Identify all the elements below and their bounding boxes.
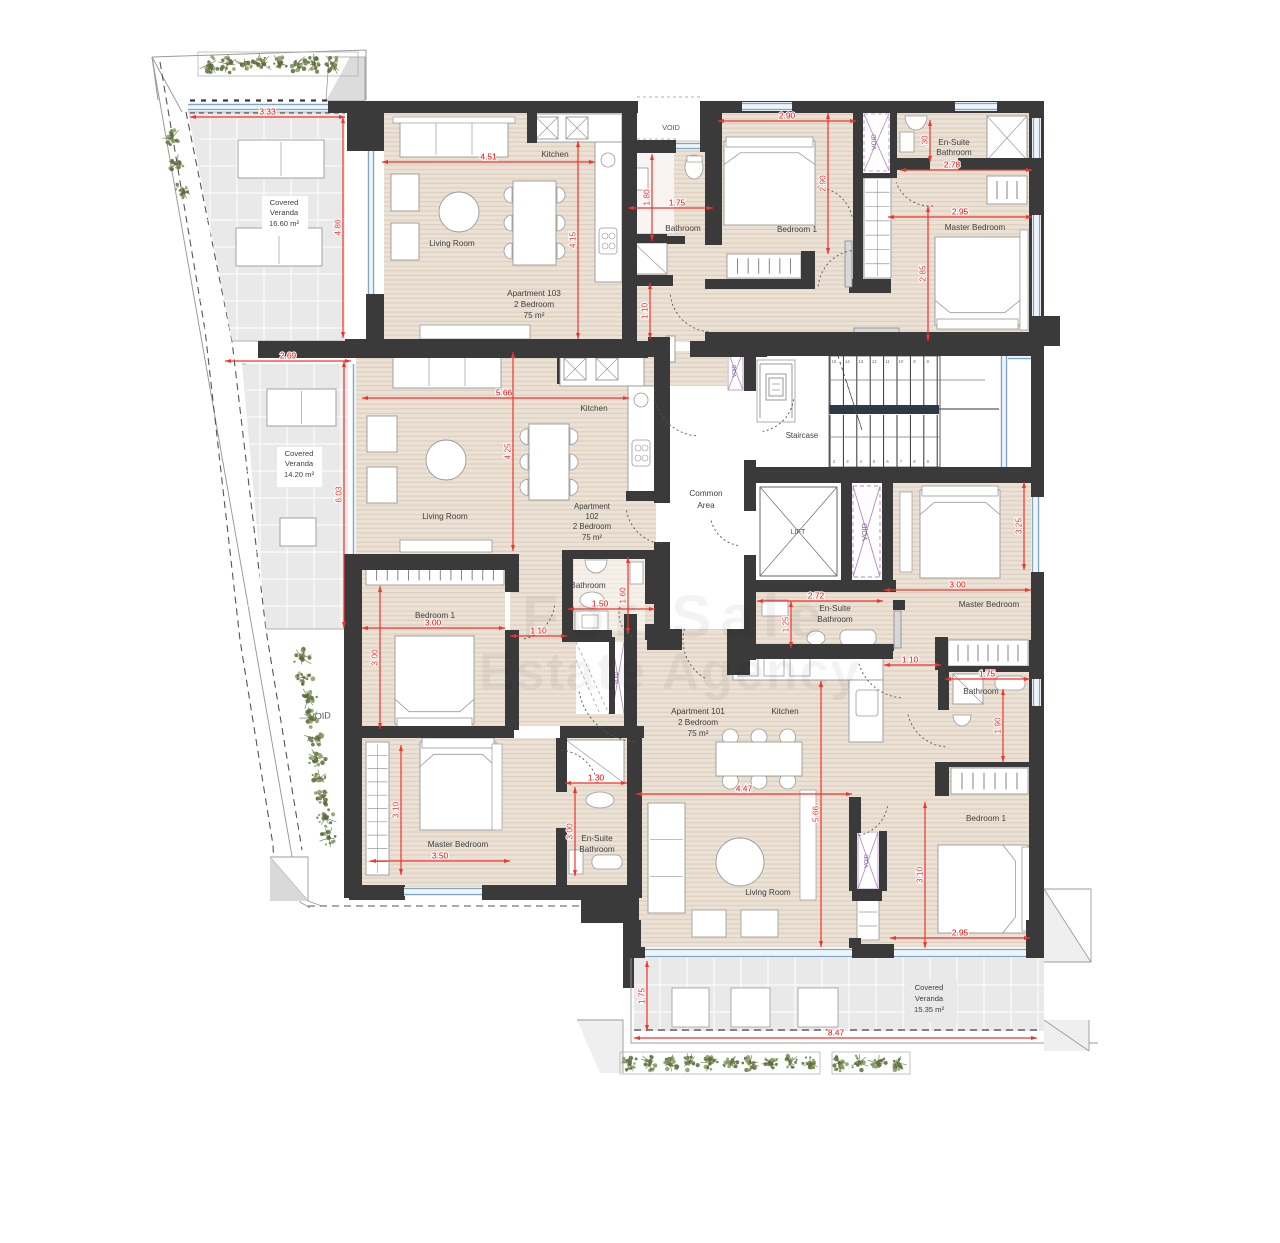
svg-text:2.69: 2.69: [280, 351, 297, 361]
svg-text:2 Bedroom: 2 Bedroom: [678, 718, 718, 727]
svg-text:VOID: VOID: [662, 123, 680, 132]
svg-text:VOID: VOID: [860, 523, 869, 541]
svg-text:1.10: 1.10: [902, 655, 919, 665]
svg-text:Living Room: Living Room: [422, 512, 468, 521]
svg-text:3.00: 3.00: [949, 580, 966, 590]
svg-text:Kitchen: Kitchen: [541, 150, 569, 159]
svg-text:Master Bedroom: Master Bedroom: [428, 840, 489, 849]
svg-text:2.95: 2.95: [952, 207, 969, 217]
svg-text:1.30: 1.30: [588, 773, 605, 783]
svg-text:4.25: 4.25: [503, 443, 513, 460]
svg-text:Bedroom 1: Bedroom 1: [415, 611, 455, 620]
svg-text:3.10: 3.10: [391, 802, 401, 819]
svg-text:3.33: 3.33: [259, 107, 276, 117]
svg-text:1.80: 1.80: [642, 189, 652, 206]
svg-text:15: 15: [832, 359, 837, 364]
svg-text:Veranda: Veranda: [270, 208, 299, 217]
svg-text:VOID: VOID: [732, 365, 738, 378]
svg-text:Bathroom: Bathroom: [936, 148, 972, 157]
svg-text:14.20 m²: 14.20 m²: [284, 470, 314, 479]
svg-text:2 Bedroom: 2 Bedroom: [514, 300, 554, 309]
svg-text:2.90: 2.90: [779, 111, 796, 121]
svg-text:2 Bedroom: 2 Bedroom: [573, 522, 611, 531]
svg-text:11: 11: [885, 359, 890, 364]
svg-text:Kitchen: Kitchen: [771, 707, 799, 716]
svg-text:3.50: 3.50: [432, 851, 449, 861]
svg-text:2.85: 2.85: [918, 265, 928, 282]
svg-text:Bathroom: Bathroom: [963, 687, 999, 696]
svg-text:Veranda: Veranda: [915, 994, 944, 1003]
svg-text:4.47: 4.47: [736, 784, 753, 794]
svg-text:4.15: 4.15: [568, 232, 578, 249]
svg-text:102: 102: [585, 512, 598, 521]
svg-text:Apartment: Apartment: [574, 502, 611, 511]
svg-text:2.78: 2.78: [944, 160, 961, 170]
svg-text:Area: Area: [697, 501, 715, 510]
svg-text:Master Bedroom: Master Bedroom: [959, 600, 1020, 609]
svg-text:8.47: 8.47: [828, 1028, 845, 1038]
svg-text:1.10: 1.10: [640, 303, 650, 320]
svg-text:En-Suite: En-Suite: [938, 138, 970, 147]
svg-text:3.00: 3.00: [565, 823, 575, 840]
svg-text:75 m²: 75 m²: [524, 311, 545, 320]
svg-text:75 m²: 75 m²: [688, 729, 709, 738]
svg-text:15.35 m²: 15.35 m²: [914, 1005, 944, 1014]
svg-text:Covered: Covered: [285, 449, 314, 458]
svg-text:Kitchen: Kitchen: [580, 404, 608, 413]
svg-text:Covered: Covered: [915, 983, 944, 992]
svg-text:Estate Agency: Estate Agency: [479, 643, 861, 701]
svg-text:1.75: 1.75: [669, 198, 686, 208]
svg-text:Bedroom 1: Bedroom 1: [966, 814, 1006, 823]
svg-text:Covered: Covered: [270, 198, 299, 207]
svg-text:.30: .30: [921, 135, 930, 147]
svg-text:1.75: 1.75: [979, 669, 996, 679]
svg-text:Master Bedroom: Master Bedroom: [945, 223, 1006, 232]
svg-text:10: 10: [899, 359, 904, 364]
svg-text:16.60 m²: 16.60 m²: [269, 219, 299, 228]
svg-text:13: 13: [858, 359, 863, 364]
svg-text:1.75: 1.75: [637, 988, 647, 1005]
svg-text:Apartment 101: Apartment 101: [671, 707, 725, 716]
svg-text:VOID: VOID: [871, 134, 878, 150]
svg-text:For Sale: For Sale: [522, 583, 831, 650]
svg-text:3.25: 3.25: [1014, 518, 1024, 535]
svg-text:2.90: 2.90: [818, 175, 828, 192]
svg-text:VOID: VOID: [864, 854, 870, 868]
svg-text:Veranda: Veranda: [285, 459, 314, 468]
svg-text:Bathroom: Bathroom: [665, 224, 701, 233]
svg-text:Bathroom: Bathroom: [579, 845, 615, 854]
svg-text:3.10: 3.10: [915, 867, 925, 884]
svg-text:1.90: 1.90: [993, 717, 1003, 734]
svg-text:75 m²: 75 m²: [582, 533, 602, 542]
svg-text:2.95: 2.95: [952, 928, 969, 938]
svg-text:Staircase: Staircase: [786, 431, 819, 440]
svg-text:En-Suite: En-Suite: [581, 834, 613, 843]
svg-text:Living Room: Living Room: [429, 239, 475, 248]
svg-text:14: 14: [845, 359, 850, 364]
svg-text:Bedroom 1: Bedroom 1: [777, 225, 817, 234]
svg-text:12: 12: [872, 359, 877, 364]
svg-text:6.03: 6.03: [334, 486, 344, 503]
svg-text:5.66: 5.66: [496, 388, 513, 398]
svg-text:Common: Common: [689, 489, 723, 498]
svg-text:Living Room: Living Room: [745, 888, 791, 897]
svg-text:LIFT: LIFT: [791, 527, 806, 536]
svg-text:3.00: 3.00: [370, 649, 380, 666]
svg-text:4.51: 4.51: [480, 152, 497, 162]
svg-text:Apartment 103: Apartment 103: [507, 289, 561, 298]
svg-text:4.86: 4.86: [333, 219, 343, 236]
svg-text:5.66: 5.66: [811, 806, 821, 823]
